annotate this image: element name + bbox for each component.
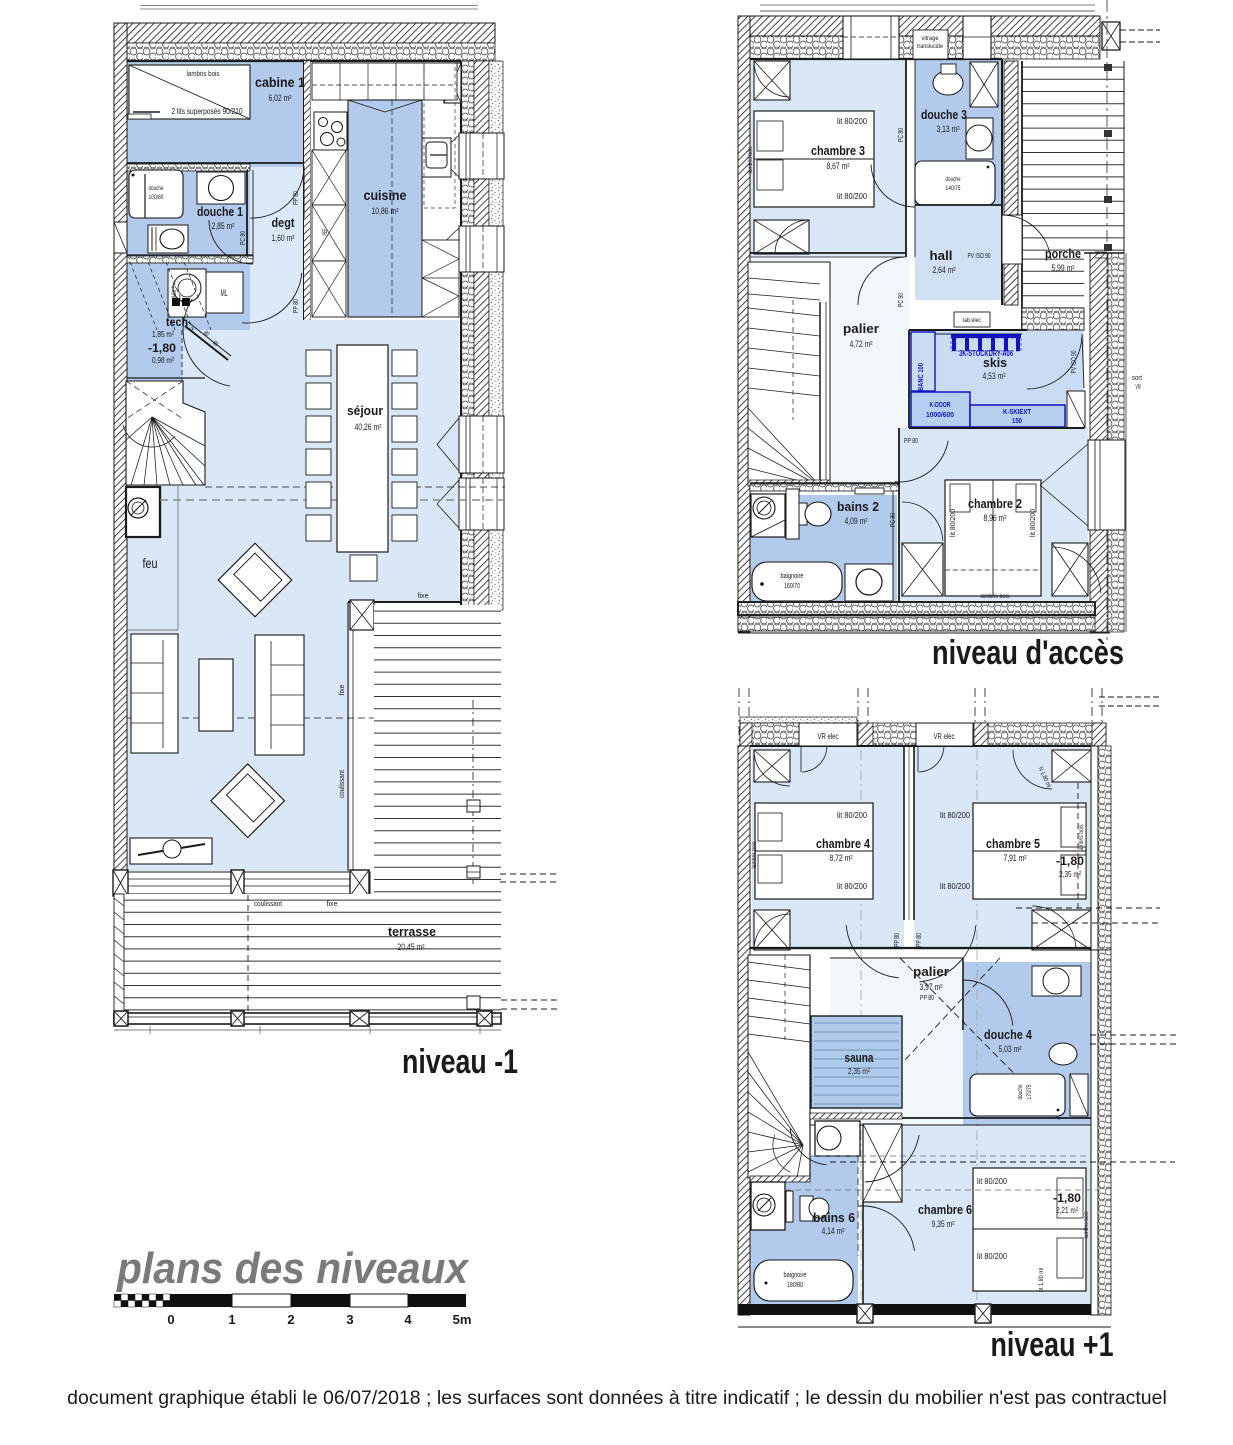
svg-text:douche 3: douche 3 <box>921 108 967 122</box>
svg-text:lit 80/200: lit 80/200 <box>940 811 971 820</box>
svg-text:PC 80: PC 80 <box>896 128 905 142</box>
svg-text:ht 1,80 ml: ht 1,80 ml <box>1038 1268 1045 1292</box>
svg-text:VM: VM <box>1136 384 1141 391</box>
svg-text:lit 80/200: lit 80/200 <box>837 192 868 201</box>
svg-text:lit 80/200: lit 80/200 <box>977 1252 1008 1261</box>
svg-text:3,97 m²: 3,97 m² <box>920 982 943 992</box>
svg-text:translucide: translucide <box>917 43 943 50</box>
svg-text:PP 80: PP 80 <box>904 436 918 445</box>
svg-text:lit 80/200: lit 80/200 <box>1028 509 1037 537</box>
svg-text:4,14 m²: 4,14 m² <box>822 1226 845 1236</box>
svg-text:fixe: fixe <box>337 685 346 696</box>
svg-text:3: 3 <box>346 1312 353 1327</box>
svg-text:douche: douche <box>1017 1084 1024 1099</box>
svg-text:140/75: 140/75 <box>946 185 961 192</box>
svg-text:REF: REF <box>322 228 329 235</box>
svg-text:ML: ML <box>221 288 228 299</box>
svg-text:4,53 m²: 4,53 m² <box>983 371 1006 381</box>
svg-text:lambris bois: lambris bois <box>187 69 220 78</box>
svg-text:cabine 1: cabine 1 <box>255 75 305 90</box>
svg-text:degt: degt <box>272 216 296 230</box>
svg-text:chambre 6: chambre 6 <box>918 1202 972 1217</box>
svg-text:lambris bois: lambris bois <box>1079 825 1085 852</box>
svg-text:1000/600: 1000/600 <box>926 410 954 419</box>
svg-text:K-DOOR: K-DOOR <box>930 400 951 409</box>
svg-text:terrasse: terrasse <box>388 924 436 939</box>
svg-text:douche 4: douche 4 <box>984 1027 1033 1042</box>
svg-text:5m: 5m <box>453 1312 472 1327</box>
svg-text:1: 1 <box>228 1312 235 1327</box>
svg-text:douche 1: douche 1 <box>197 205 243 219</box>
svg-text:PP 80: PP 80 <box>291 191 300 205</box>
svg-text:coulissant: coulissant <box>337 769 346 798</box>
svg-text:PC 90: PC 90 <box>896 293 905 307</box>
svg-text:lit 80/200: lit 80/200 <box>837 882 868 891</box>
svg-text:lambris bois: lambris bois <box>748 147 754 174</box>
svg-text:VR elec: VR elec <box>934 732 955 741</box>
svg-text:ACV 3: ACV 3 <box>171 286 178 298</box>
svg-text:lambris bois: lambris bois <box>1084 1212 1090 1239</box>
svg-text:10,86 m²: 10,86 m² <box>372 206 399 216</box>
svg-text:2,85 m²: 2,85 m² <box>212 221 235 231</box>
svg-text:5,99 m²: 5,99 m² <box>1052 263 1075 273</box>
svg-text:niveau -1: niveau -1 <box>402 1043 518 1081</box>
svg-text:feu: feu <box>143 556 158 571</box>
svg-text:plans des niveaux: plans des niveaux <box>116 1244 469 1293</box>
svg-text:PP 80: PP 80 <box>892 933 901 947</box>
svg-text:PP 80: PP 80 <box>920 993 934 1002</box>
svg-text:2,21 m²: 2,21 m² <box>1056 1205 1078 1215</box>
svg-text:PC 80: PC 80 <box>888 513 897 527</box>
svg-text:skis: skis <box>983 355 1007 370</box>
svg-text:170/75: 170/75 <box>1026 1084 1033 1099</box>
svg-text:4,09 m²: 4,09 m² <box>845 516 868 526</box>
svg-text:-1,80: -1,80 <box>148 341 176 355</box>
svg-text:lit 80/200: lit 80/200 <box>837 811 868 820</box>
svg-text:BANC 100: BANC 100 <box>916 363 925 391</box>
svg-text:150: 150 <box>1012 416 1022 425</box>
svg-text:lambris bois: lambris bois <box>752 842 758 869</box>
svg-text:vitrage: vitrage <box>922 35 939 42</box>
svg-text:chambre 3: chambre 3 <box>811 143 865 158</box>
svg-text:0,98 m²: 0,98 m² <box>152 355 174 365</box>
svg-text:séjour: séjour <box>347 403 383 418</box>
svg-text:niveau +1: niveau +1 <box>991 1326 1114 1364</box>
svg-text:palier: palier <box>843 321 879 336</box>
svg-text:douche: douche <box>946 176 961 183</box>
svg-text:lit 80/200: lit 80/200 <box>837 117 868 126</box>
svg-text:2,35 m²: 2,35 m² <box>848 1066 870 1076</box>
svg-text:baignoire: baignoire <box>784 1272 807 1279</box>
svg-text:160/70: 160/70 <box>784 583 800 590</box>
svg-text:20,45 m²: 20,45 m² <box>398 942 425 952</box>
svg-text:lit 80/200: lit 80/200 <box>948 509 957 537</box>
svg-text:2 lits superposés 90/210: 2 lits superposés 90/210 <box>172 107 243 116</box>
svg-text:lab elec: lab elec <box>963 317 981 324</box>
svg-text:douche: douche <box>149 185 164 192</box>
svg-text:VR elec: VR elec <box>818 732 839 741</box>
svg-text:K-SKIEXT: K-SKIEXT <box>1003 407 1031 416</box>
svg-text:PV ISO 90: PV ISO 90 <box>1071 350 1078 373</box>
svg-text:8,96 m²: 8,96 m² <box>984 513 1007 523</box>
svg-text:baignoire: baignoire <box>781 573 804 580</box>
svg-text:bains 6: bains 6 <box>813 1210 855 1225</box>
svg-text:3,13 m²: 3,13 m² <box>937 124 960 134</box>
svg-text:fixe: fixe <box>418 591 429 600</box>
svg-text:PC 80: PC 80 <box>238 231 247 245</box>
svg-text:PP 80: PP 80 <box>291 299 300 313</box>
svg-text:PP 80: PP 80 <box>914 933 923 947</box>
svg-text:5,03 m²: 5,03 m² <box>999 1044 1022 1054</box>
svg-text:6,02 m²: 6,02 m² <box>269 93 292 103</box>
svg-text:8,67 m²: 8,67 m² <box>827 161 850 171</box>
svg-text:8,72 m²: 8,72 m² <box>830 853 853 863</box>
svg-text:lambris bois: lambris bois <box>981 593 1011 600</box>
svg-text:document graphique établi le 0: document graphique établi le 06/07/2018 … <box>67 1387 1167 1409</box>
svg-text:9,35 m²: 9,35 m² <box>932 1219 955 1229</box>
svg-text:7,91 m²: 7,91 m² <box>1004 853 1027 863</box>
svg-text:fixe: fixe <box>327 899 338 908</box>
svg-text:niveau d'accès: niveau d'accès <box>932 634 1124 672</box>
svg-text:sort: sort <box>1132 375 1142 382</box>
svg-text:cuisine: cuisine <box>364 188 407 203</box>
svg-text:lit 80/200: lit 80/200 <box>977 1177 1008 1186</box>
svg-text:2: 2 <box>287 1312 294 1327</box>
svg-text:180/80: 180/80 <box>787 1282 803 1289</box>
svg-text:100/80: 100/80 <box>149 194 164 201</box>
svg-text:PV ISO 90: PV ISO 90 <box>968 253 991 260</box>
svg-text:40,26 m²: 40,26 m² <box>355 422 382 432</box>
svg-text:4,72 m²: 4,72 m² <box>850 339 873 349</box>
svg-text:1,85 m²: 1,85 m² <box>152 329 174 339</box>
svg-text:bains 2: bains 2 <box>837 499 879 514</box>
svg-text:coulissant: coulissant <box>254 899 283 908</box>
svg-text:2,64 m²: 2,64 m² <box>933 265 956 275</box>
svg-text:hall: hall <box>930 249 953 263</box>
svg-text:chambre 2: chambre 2 <box>968 496 1022 511</box>
svg-text:lit 80/200: lit 80/200 <box>940 882 971 891</box>
svg-text:chambre 5: chambre 5 <box>986 836 1040 851</box>
svg-text:-1,80: -1,80 <box>1053 1191 1081 1205</box>
svg-text:sauna: sauna <box>845 1051 875 1065</box>
svg-text:-1,80: -1,80 <box>1056 854 1084 868</box>
svg-text:4: 4 <box>404 1312 412 1327</box>
svg-text:0: 0 <box>167 1312 174 1327</box>
svg-text:1,60 m²: 1,60 m² <box>272 233 295 243</box>
svg-text:chambre 4: chambre 4 <box>816 836 871 851</box>
